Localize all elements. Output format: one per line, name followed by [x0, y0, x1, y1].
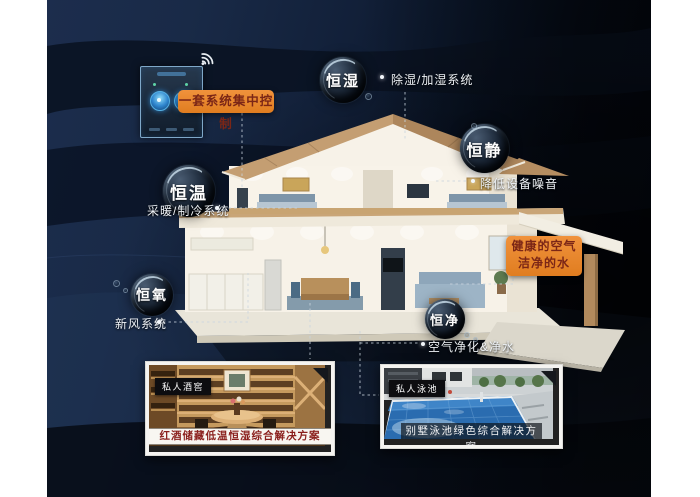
card-wine-cellar: 私人酒窖 红酒储藏低温恒湿综合解决方案	[145, 361, 335, 456]
callout-line1: 健康的空气	[506, 238, 582, 255]
panel-footer-bar	[166, 128, 177, 131]
corner-fold-icon	[313, 368, 328, 383]
control-knob-icon	[150, 91, 170, 111]
mini-bubble-icon	[113, 280, 120, 287]
infographic-page: 一套系统集中控制 恒湿 除湿/加湿系统 恒静 降低设备噪音 恒温 采暖/制冷系统…	[0, 0, 700, 497]
callout-box: 健康的空气 洁净的水	[506, 236, 582, 276]
swimming-pool-photo: 私人泳池 别墅泳池绿色综合解决方案	[384, 368, 559, 445]
bubble-temperature-label: 恒温	[170, 179, 208, 204]
desc-quiet: 降低设备噪音	[480, 175, 558, 192]
bubble-humidity-label: 恒湿	[326, 70, 360, 91]
node-dot	[215, 206, 219, 210]
mini-bubble-icon	[471, 123, 477, 129]
panel-title-bar	[157, 72, 186, 76]
bubble-humidity: 恒湿	[320, 57, 366, 103]
bubble-quiet-label: 恒静	[466, 137, 502, 161]
wine-cellar-photo: 私人酒窖 红酒储藏低温恒湿综合解决方案	[149, 365, 331, 452]
panel-footer-bar	[183, 128, 194, 131]
bubble-oxygen-label: 恒氧	[136, 285, 168, 305]
panel-footer-bar	[149, 128, 160, 131]
bubble-clean: 恒净	[425, 299, 465, 339]
control-caption-box: 一套系统集中控制	[178, 90, 274, 113]
corner-fold-icon	[541, 371, 556, 386]
card-caption: 别墅泳池绿色综合解决方案	[401, 423, 542, 439]
card-tag: 私人酒窖	[155, 378, 211, 395]
desc-temperature: 采暖/制冷系统	[147, 202, 229, 219]
mini-bubble-icon	[464, 332, 470, 338]
node-dot	[157, 320, 161, 324]
bubble-clean-label: 恒净	[430, 310, 460, 329]
bubble-oxygen: 恒氧	[131, 274, 173, 316]
stage: 一套系统集中控制 恒湿 除湿/加湿系统 恒静 降低设备噪音 恒温 采暖/制冷系统…	[47, 0, 651, 497]
node-dot	[471, 179, 475, 183]
desc-clean: 空气净化&净水	[428, 338, 515, 355]
desc-humidity: 除湿/加湿系统	[391, 71, 473, 88]
callout-line2: 洁净的水	[506, 255, 582, 272]
status-led-icon	[153, 83, 156, 86]
node-dot	[380, 75, 384, 79]
card-caption: 红酒储藏低温恒湿综合解决方案	[149, 428, 331, 445]
mini-bubble-icon	[365, 93, 372, 100]
bubble-quiet: 恒静	[460, 124, 509, 173]
mini-bubble-icon	[123, 288, 128, 293]
node-dot	[421, 342, 425, 346]
mini-bubble-icon	[473, 337, 478, 342]
status-led-icon	[185, 83, 188, 86]
card-tag: 私人泳池	[389, 380, 445, 397]
card-swimming-pool: 私人泳池 别墅泳池绿色综合解决方案	[380, 364, 563, 449]
